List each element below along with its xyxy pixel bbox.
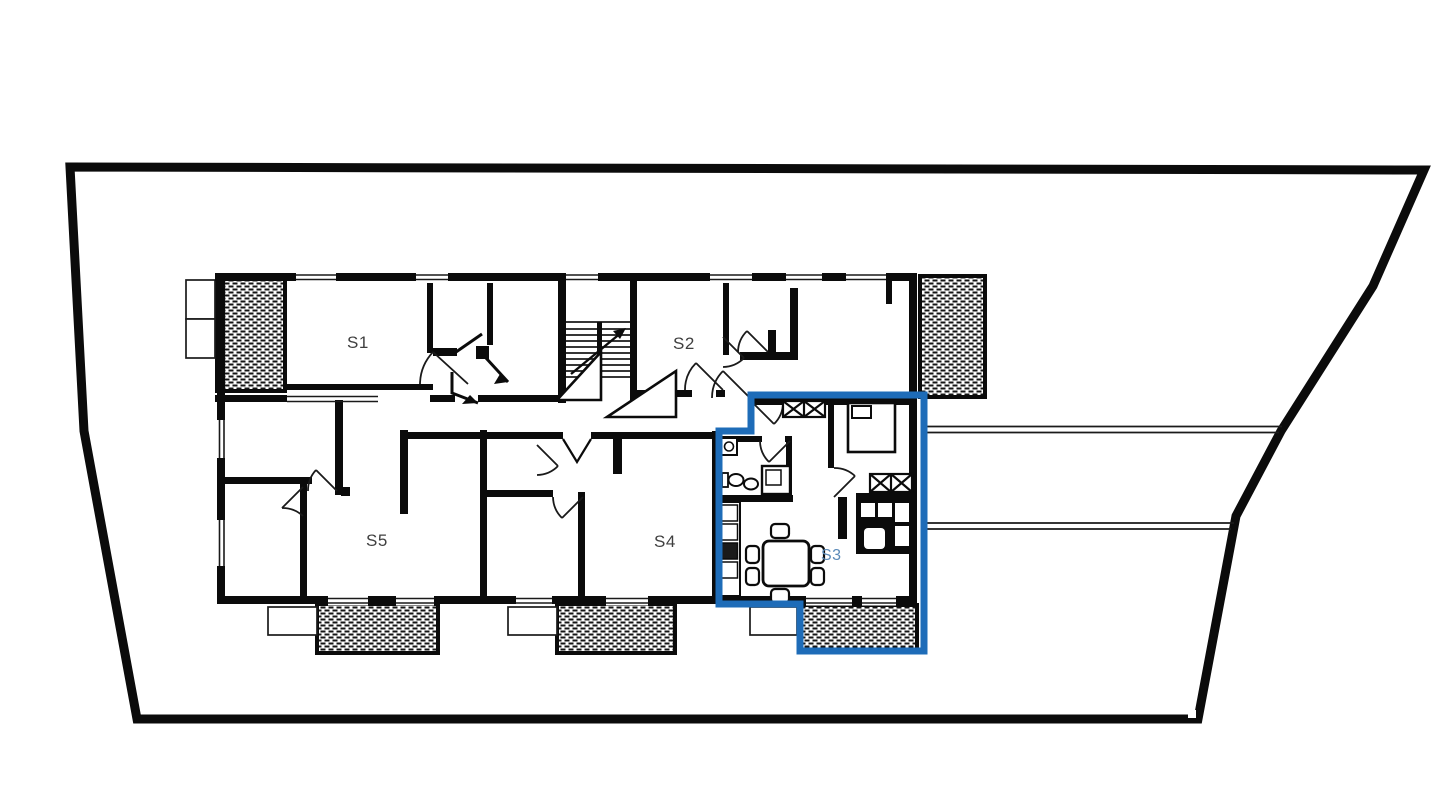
exterior-planter	[186, 280, 215, 319]
unit-s1-region[interactable]	[224, 281, 430, 385]
parking-lines	[926, 427, 1282, 530]
unit-s3-region[interactable]	[719, 395, 924, 651]
unit-s4-region[interactable]	[488, 439, 712, 597]
unit-hotspots	[224, 281, 924, 651]
balcony-bottom-s4	[557, 604, 675, 653]
interior-window-band	[287, 397, 378, 402]
terrace-step	[268, 607, 317, 635]
site-plan-svg: S1 S2 S3 S4 S5	[0, 0, 1431, 805]
boundary-corner-notch	[1188, 710, 1196, 718]
unit-s5-region[interactable]	[224, 402, 480, 597]
floorplan-canvas: S1 S2 S3 S4 S5	[0, 0, 1431, 805]
exterior-planter	[186, 319, 215, 358]
balcony-top-right	[920, 276, 985, 397]
unit-s2-region[interactable]	[637, 281, 907, 390]
balcony-bottom-s5	[317, 604, 438, 653]
terrace-step	[508, 607, 557, 635]
